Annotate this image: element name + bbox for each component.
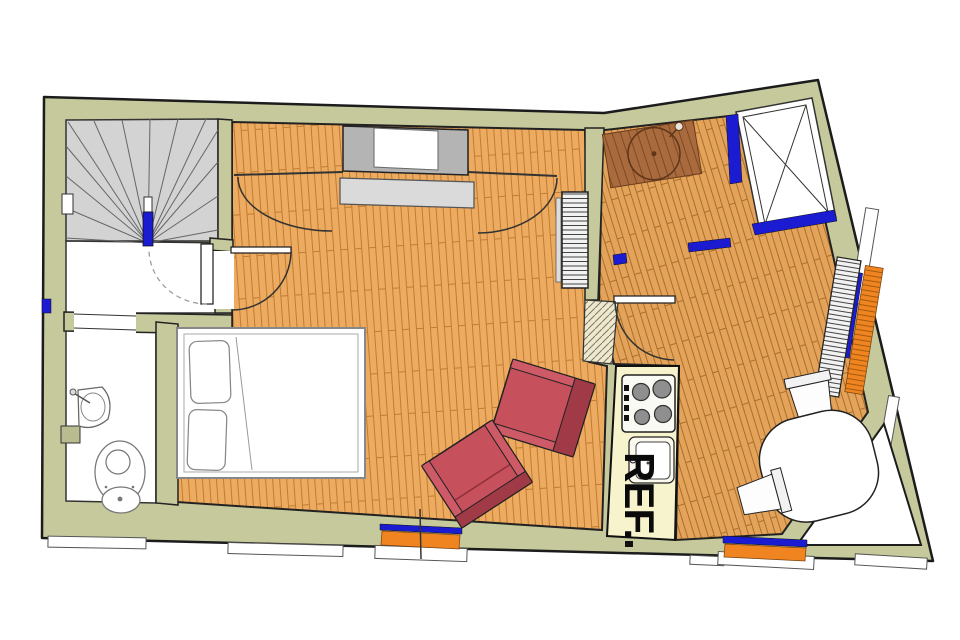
left-wall-sill (42, 299, 51, 313)
radiator-pipe-strip (556, 198, 561, 282)
newel-post (143, 212, 153, 246)
stair-right-wall (218, 119, 232, 243)
counter-anchor (625, 541, 633, 547)
south-window-divider (420, 509, 421, 559)
basin-tap-knob (70, 389, 76, 395)
pillow-bottom (187, 409, 227, 470)
dresser (340, 178, 474, 208)
stair-floor (66, 119, 218, 241)
double-bed (177, 328, 365, 478)
stair-wall-niche (62, 194, 73, 214)
bedroom-door-leaf (231, 247, 291, 253)
floor-plan-drawing: REF. (0, 0, 960, 640)
pillow-top (189, 340, 231, 403)
threshold-steps (583, 300, 618, 364)
bedroom-doorway (213, 251, 234, 309)
kitchen-door-leaf (614, 296, 675, 303)
kitchen-counter: REF. (607, 366, 679, 547)
closet-door-panel (374, 128, 438, 170)
wall-niche (61, 426, 80, 443)
toilet (95, 441, 145, 513)
floor-plan-page: REF. (0, 0, 960, 640)
toilet-seat (106, 450, 130, 474)
living-room-radiator (556, 192, 588, 288)
toilet-dot (118, 497, 122, 501)
radiator-fins (562, 192, 588, 288)
landing-door-leaf (201, 244, 213, 304)
wall-sill-stub (613, 253, 627, 265)
bath-right-wall (156, 322, 178, 505)
newel-post-cap (144, 197, 152, 212)
refrigerator-label: REF. (616, 452, 663, 539)
